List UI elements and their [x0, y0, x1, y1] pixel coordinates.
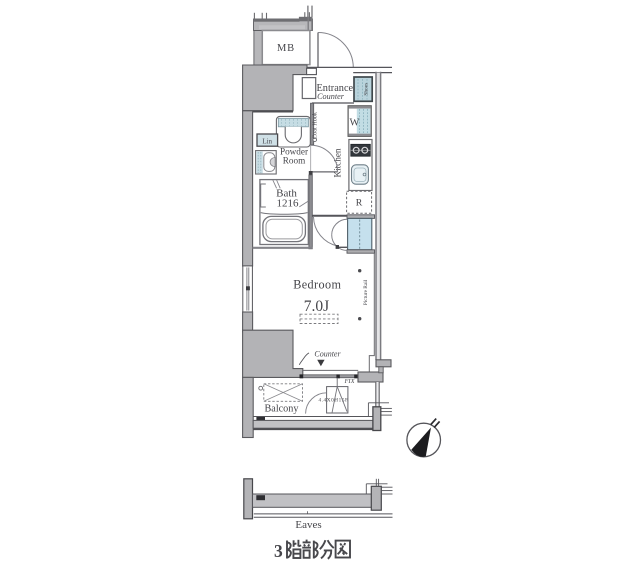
svg-text:Picture Rail: Picture Rail [363, 279, 369, 305]
svg-text:Counter: Counter [317, 92, 345, 101]
svg-text:MB: MB [277, 43, 295, 54]
svg-text:Coat Hook: Coat Hook [311, 111, 318, 139]
svg-text:3: 3 [274, 541, 283, 561]
svg-text:7.0J: 7.0J [304, 298, 329, 315]
svg-text:R: R [356, 198, 363, 209]
svg-text:Room: Room [283, 156, 305, 166]
svg-text:Bedroom: Bedroom [293, 278, 341, 292]
svg-text:4.4X0H15F: 4.4X0H15F [318, 398, 348, 404]
svg-text:Eaves: Eaves [295, 519, 321, 531]
svg-text:Counter: Counter [314, 350, 341, 359]
svg-text:Shoes: Shoes [363, 83, 369, 96]
svg-text:1216: 1216 [277, 197, 300, 209]
svg-text:Kitchen: Kitchen [333, 148, 343, 177]
svg-text:W: W [350, 118, 360, 129]
svg-text:FIX: FIX [344, 378, 356, 385]
svg-text:Balcony: Balcony [265, 404, 300, 415]
svg-text:Lin: Lin [262, 138, 272, 146]
